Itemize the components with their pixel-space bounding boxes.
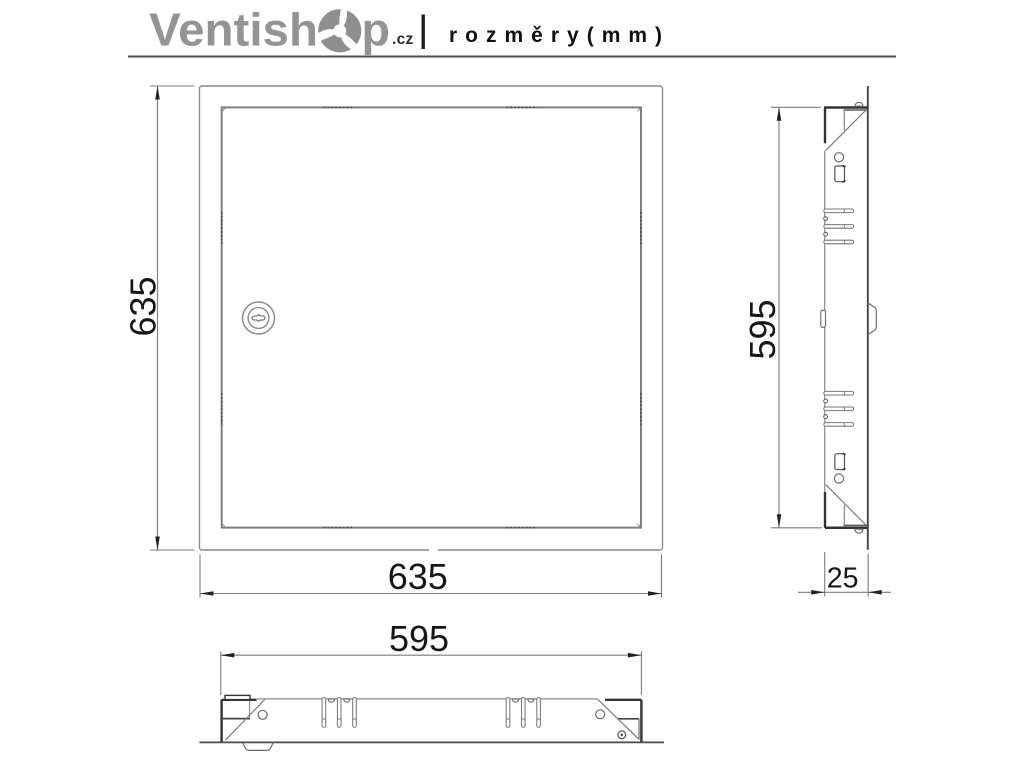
svg-text:595: 595 (742, 299, 783, 359)
svg-text:p: p (362, 4, 391, 56)
svg-text:rozměry(mm): rozměry(mm) (449, 24, 670, 47)
svg-text:25: 25 (827, 563, 859, 595)
svg-text:.cz: .cz (392, 31, 414, 48)
svg-text:Ventish: Ventish (149, 4, 318, 56)
svg-text:635: 635 (388, 556, 448, 597)
svg-text:635: 635 (123, 276, 164, 336)
svg-text:595: 595 (389, 618, 449, 659)
